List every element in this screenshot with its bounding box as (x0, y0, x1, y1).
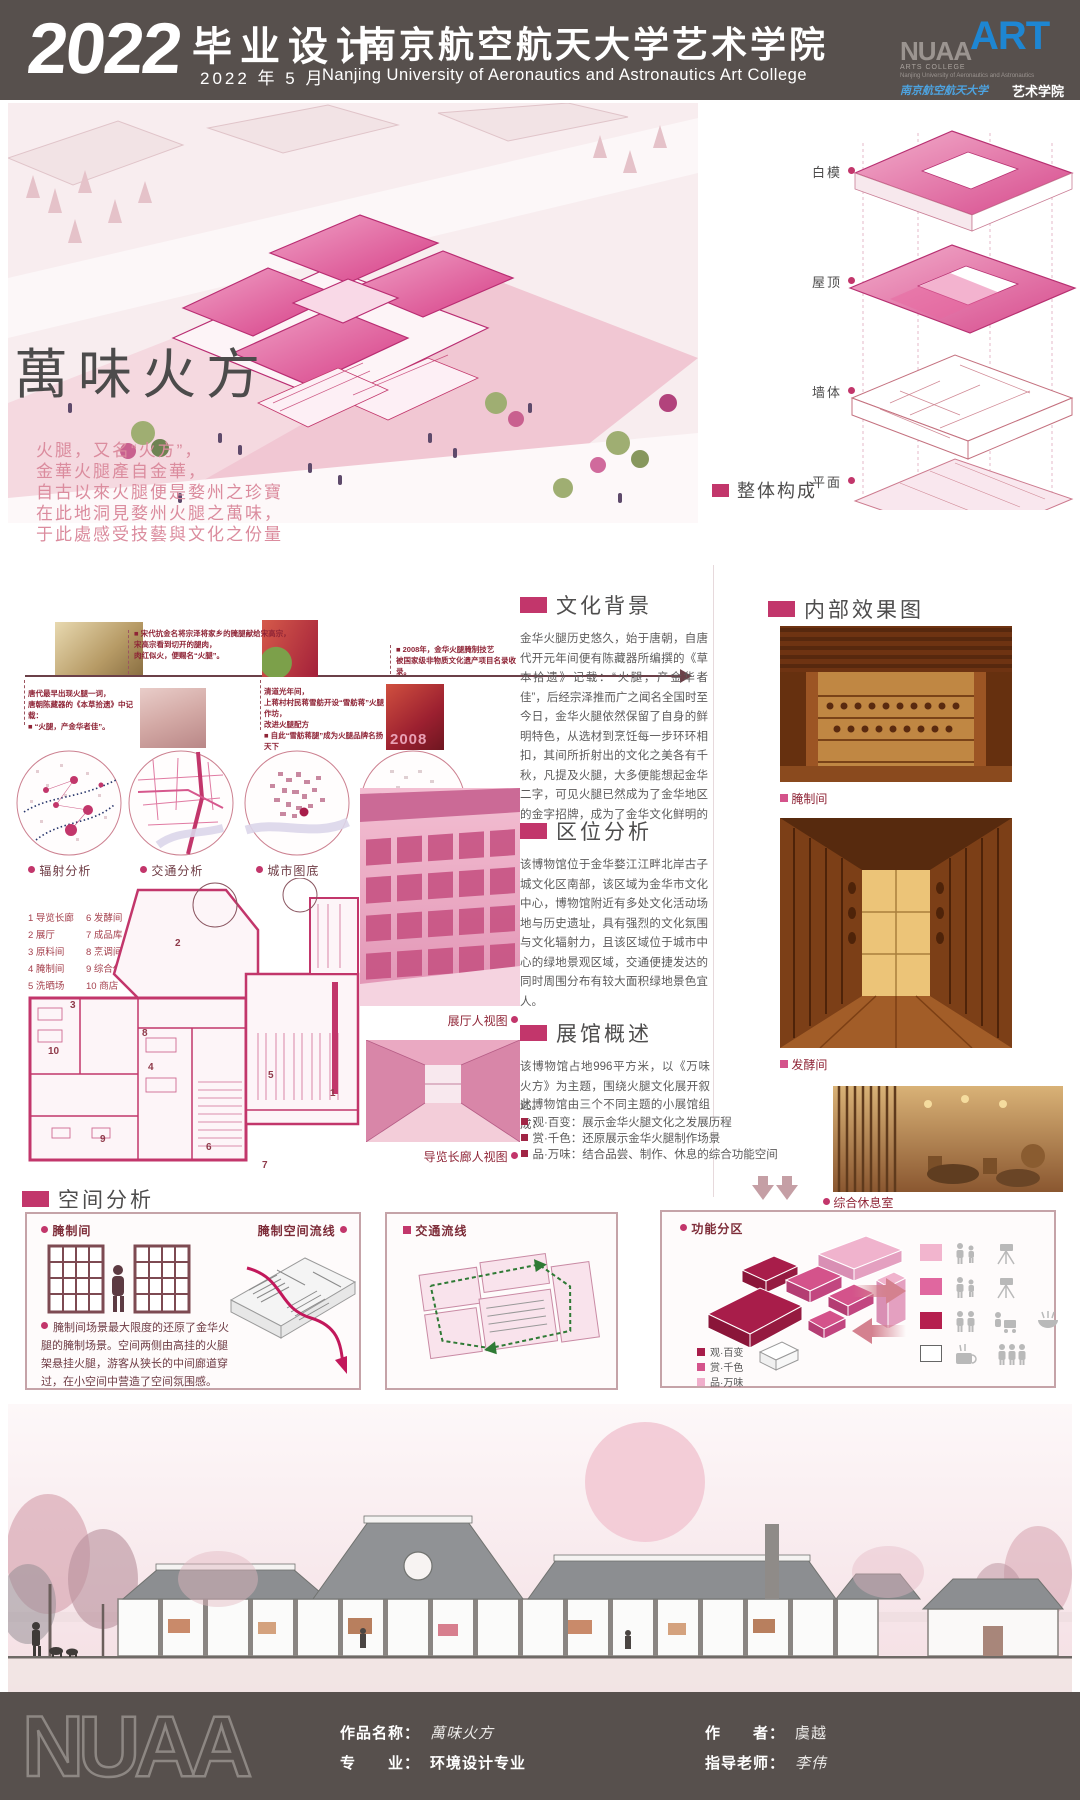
person-silhouette (112, 1265, 124, 1312)
section-title-text: 展馆概述 (556, 1018, 652, 1048)
bullet-square (521, 1118, 528, 1125)
legend-swatch (697, 1378, 705, 1386)
plan-room-number: 7 (262, 1160, 268, 1171)
section-title-text: 区位分析 (556, 816, 652, 846)
photo-curing-room (780, 626, 1012, 782)
zone-swatch-dark (920, 1312, 942, 1329)
legend-swatch (697, 1348, 705, 1356)
plan-room-number: 2 (175, 938, 181, 949)
timeline-event-2008: ■ 2008年，金华火腿腌制技艺 被国家级非物质文化遗产项目名录收录。 (396, 644, 526, 677)
zone-icons-row-2 (954, 1276, 1054, 1300)
traffic-flow-box: 交通流线 (385, 1212, 618, 1390)
zone-swatch-light (920, 1244, 942, 1261)
label-square (403, 1226, 411, 1234)
plan-room-number: 6 (206, 1142, 212, 1153)
logo-nuaa-text: NUAA (900, 36, 971, 67)
plan-room-number: 8 (142, 1028, 148, 1039)
logo-art-college-cn: 艺术学院 (1012, 81, 1064, 100)
intro-line: 自古以來火腿便是婺州之珍寶 (36, 482, 283, 503)
timeline-connector (390, 645, 391, 674)
photo-label-lounge: 综合休息室 (823, 1194, 893, 1211)
school-name-en: Nanjing University of Aeronautics and As… (322, 66, 807, 85)
timeline-connector (128, 630, 129, 674)
exploded-axon-diagram (700, 103, 1080, 510)
advisor-label: 指导老师： (705, 1755, 785, 1772)
work-name-value: 萬味火方 (430, 1725, 494, 1742)
exploded-label-white-model: 白模 (812, 162, 842, 181)
section-bullet (768, 601, 795, 617)
label-square (780, 794, 788, 802)
legend-swatch (697, 1363, 705, 1371)
zone-icons-row-3 (954, 1310, 1080, 1334)
overview-bullet-3: 品·万味：结合品尝、制作、休息的综合功能空间 (521, 1145, 778, 1166)
header-bar: 2022 毕业设计 2022 年 5 月 南京航空航天大学艺术学院 Nanjin… (0, 0, 1080, 100)
circle-label-figure-ground: 城市图底 (256, 862, 319, 879)
view-label-corridor: 导览长廊人视图 (360, 1148, 518, 1165)
footer-major-row: 专 业：环境设计专业 (340, 1752, 526, 1773)
zone-icons-row-4 (954, 1343, 1080, 1367)
section-bullet (712, 484, 729, 497)
logo-arts-college: ARTS COLLEGE (900, 64, 966, 71)
plan-room-number: 10 (48, 1046, 59, 1057)
section-space-analysis: 空间分析 (22, 1184, 154, 1214)
figure-ground-map (244, 750, 350, 856)
bullet-square (521, 1150, 528, 1157)
timeline-event-tang: 唐代最早出现火腿一词， 唐朝陈藏器的《本草拾遗》中记载： ■ “火腿，产金华者佳… (28, 688, 133, 732)
traffic-flow-diagram (395, 1240, 610, 1385)
label-dot (41, 1322, 48, 1329)
header-date: 2022 年 5 月 (200, 64, 325, 89)
logo-art-text: ART (970, 14, 1049, 59)
label-dot (140, 866, 147, 873)
down-arrow (776, 1176, 798, 1200)
building-elevation (8, 1404, 1072, 1692)
location-body: 该博物馆位于金华婺江江畔北岸古子城文化区南部，该区域为金华市文化中心，博物馆附近… (520, 856, 708, 1012)
section-title-text: 空间分析 (58, 1184, 154, 1214)
exploded-dot (848, 277, 855, 284)
photo-fermentation-room (780, 818, 1012, 1048)
bullet-square (521, 1134, 528, 1141)
zone-legend-3: 品·万味 (697, 1374, 743, 1389)
label-dot (340, 1226, 347, 1233)
corridor-view (366, 1040, 520, 1142)
label-dot (28, 866, 35, 873)
timeline-photo-ham-2008: 2008 (386, 684, 444, 750)
curing-flow-axon (225, 1242, 360, 1387)
label-dot (41, 1226, 48, 1233)
label-dot (511, 1152, 518, 1159)
poster-title: 萬味火方 (14, 330, 270, 409)
school-name-cn: 南京航空航天大学艺术学院 (360, 16, 828, 68)
floor-plan (18, 878, 363, 1178)
section-bullet (520, 823, 547, 839)
intro-line: 火腿，又名“火方”， (36, 440, 283, 461)
section-title-text: 整体构成 (737, 477, 817, 503)
major-value: 环境设计专业 (430, 1755, 526, 1772)
down-arrow (752, 1176, 774, 1200)
timeline-photo-ancient-book (55, 622, 143, 675)
plan-room-number: 3 (70, 1000, 76, 1011)
right-house (923, 1579, 1063, 1656)
arrow-left-icon (852, 1316, 906, 1346)
walls-drawing (852, 355, 1072, 459)
logo-calligraphy: 南京航空航天大学 (900, 82, 988, 98)
exploded-dot (848, 477, 855, 484)
white-model-drawing (855, 131, 1072, 231)
exploded-dot (848, 387, 855, 394)
plan-room-number: 1 (330, 1088, 336, 1099)
photo-label-fermentation: 发酵间 (780, 1056, 827, 1073)
section-overall-composition: 整体构成 (712, 477, 817, 503)
column-divider (713, 565, 714, 1197)
footer-work-row: 作品名称：萬味火方 (340, 1722, 494, 1743)
exploded-label-roof: 屋顶 (812, 272, 842, 291)
timeline-event-qing: 清道光年间， 上蒋村村民蒋雪舫开设“雪舫蒋”火腿作坊， 改进火腿配方 ■ 自此“… (264, 686, 389, 752)
curing-doors-illustration (47, 1244, 192, 1316)
plan-drawing (855, 459, 1072, 510)
zone-swatch-mid (920, 1278, 942, 1295)
footer-nuaa-logo: NUAA (22, 1698, 246, 1797)
traffic-analysis-map (128, 750, 234, 856)
logo-university-line: Nanjing University of Aeronautics and As… (900, 73, 1034, 79)
intro-line: 在此地洞見婺州火腿之萬味， (36, 503, 283, 524)
label-dot (256, 866, 263, 873)
box-label-curing: 腌制间 (41, 1222, 91, 1239)
label-dot (511, 1016, 518, 1023)
timeline-event-song: ■ 宋代抗金名将宗泽将家乡的腌腿献给宋高宗， 宋高宗看到切开的腿肉， 肉红似火，… (134, 628, 319, 661)
plan-room-number: 9 (100, 1134, 106, 1145)
footer-author-row: 作 者：虞越 (705, 1722, 827, 1743)
intro-line: 金華火腿產自金華， (36, 461, 283, 482)
section-bullet (520, 1025, 547, 1041)
header-year: 2022 (24, 8, 185, 90)
section-culture: 文化背景 (520, 590, 652, 620)
label-square (780, 1060, 788, 1068)
poster-intro: 火腿，又名“火方”， 金華火腿產自金華， 自古以來火腿便是婺州之珍寶 在此地洞見… (36, 440, 283, 545)
culture-body: 金华火腿历史悠久，始于唐朝，自唐代开元年间便有陈藏器所编撰的《草本拾遗》记载：“… (520, 630, 708, 845)
section-interior: 内部效果图 (768, 594, 924, 624)
work-name-label: 作品名称： (340, 1725, 420, 1742)
box-label-zoning: 功能分区 (680, 1220, 743, 1237)
label-dot (680, 1224, 687, 1231)
timeline-connector (260, 680, 261, 730)
zone-icons-row-1 (954, 1242, 1054, 1266)
exhibition-hall-view (360, 788, 520, 1006)
zone-legend-1: 观·百变 (697, 1344, 743, 1359)
functional-zoning-box: 功能分区 观·百变 赏·千色 品·万味 (660, 1210, 1056, 1388)
zone-swatch-white (920, 1345, 942, 1362)
view-label-hall: 展厅人视图 (360, 1012, 518, 1029)
circle-label-radiation: 辐射分析 (28, 862, 91, 879)
photo-label-curing: 腌制间 (780, 790, 827, 807)
nuaa-art-logo: NUAA ART ARTS COLLEGE Nanjing University… (900, 6, 1075, 98)
photo-lounge (833, 1086, 1063, 1192)
circle-label-traffic: 交通分析 (140, 862, 203, 879)
section-bullet (520, 597, 547, 613)
exploded-dot (848, 167, 855, 174)
timeline-year-overlay: 2008 (390, 731, 427, 748)
major-label: 专 业： (340, 1755, 420, 1772)
author-value: 虞越 (795, 1725, 827, 1742)
section-location: 区位分析 (520, 816, 652, 846)
curing-room-box: 腌制间 腌制空间流线 腌制间场景最大限度的还原了金华火腿的腌制场景。空间两侧由高… (25, 1212, 361, 1390)
box-label-traffic: 交通流线 (403, 1222, 467, 1239)
curing-desc: 腌制间场景最大限度的还原了金华火腿的腌制场景。空间两侧由高挂的火腿架悬挂火腿，游… (41, 1322, 229, 1388)
label-dot (823, 1198, 830, 1205)
box-label-flow: 腌制空间流线 (258, 1222, 347, 1239)
footer-bar: NUAA 作品名称：萬味火方 专 业：环境设计专业 作 者：虞越 指导老师：李伟 (0, 1692, 1080, 1800)
footer-advisor-row: 指导老师：李伟 (705, 1752, 827, 1773)
arrow-right-icon (852, 1276, 906, 1306)
timeline-connector (24, 680, 25, 725)
section-title-text: 内部效果图 (804, 594, 924, 624)
intro-line: 于此處感受技藝與文化之份量 (36, 524, 283, 545)
section-overview: 展馆概述 (520, 1018, 652, 1048)
section-title-text: 文化背景 (556, 590, 652, 620)
exploded-label-walls: 墙体 (812, 382, 842, 401)
roof-drawing (850, 245, 1075, 333)
plan-room-number: 5 (268, 1070, 274, 1081)
radiation-analysis-map (16, 750, 122, 856)
advisor-value: 李伟 (795, 1755, 827, 1772)
timeline-photo-painting (140, 688, 206, 748)
zone-legend-2: 赏·千色 (697, 1359, 743, 1374)
plan-room-number: 4 (148, 1062, 154, 1073)
author-label: 作 者： (705, 1725, 785, 1742)
section-bullet (22, 1191, 49, 1207)
curing-desc-row: 腌制间场景最大限度的还原了金华火腿的腌制场景。空间两侧由高挂的火腿架悬挂火腿，游… (41, 1318, 237, 1390)
